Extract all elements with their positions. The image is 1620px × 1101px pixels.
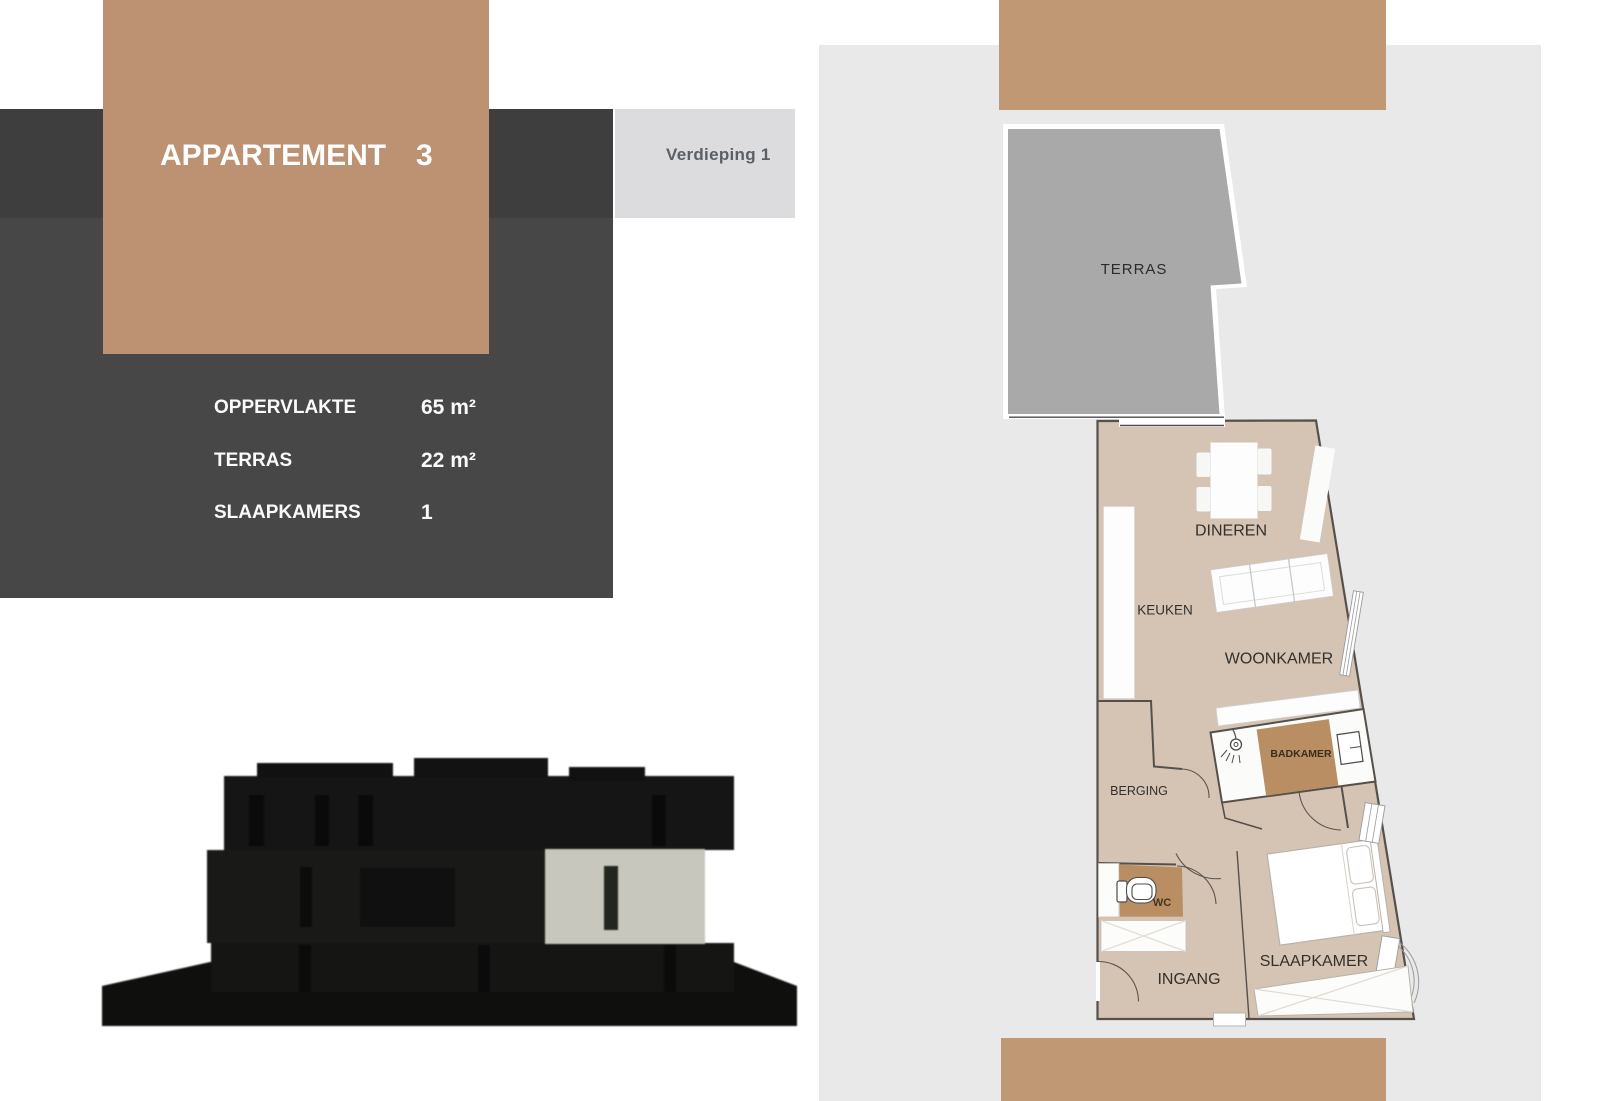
svg-text:INGANG: INGANG [1157, 971, 1220, 988]
svg-text:TERRAS: TERRAS [1101, 261, 1168, 278]
svg-text:BADKAMER: BADKAMER [1270, 748, 1332, 760]
svg-text:KEUKEN: KEUKEN [1137, 603, 1193, 618]
svg-text:WC: WC [1153, 897, 1171, 909]
svg-text:BERGING: BERGING [1110, 784, 1168, 798]
svg-text:WOONKAMER: WOONKAMER [1225, 651, 1333, 668]
svg-text:DINEREN: DINEREN [1195, 523, 1267, 540]
svg-text:SLAAPKAMER: SLAAPKAMER [1260, 953, 1368, 970]
